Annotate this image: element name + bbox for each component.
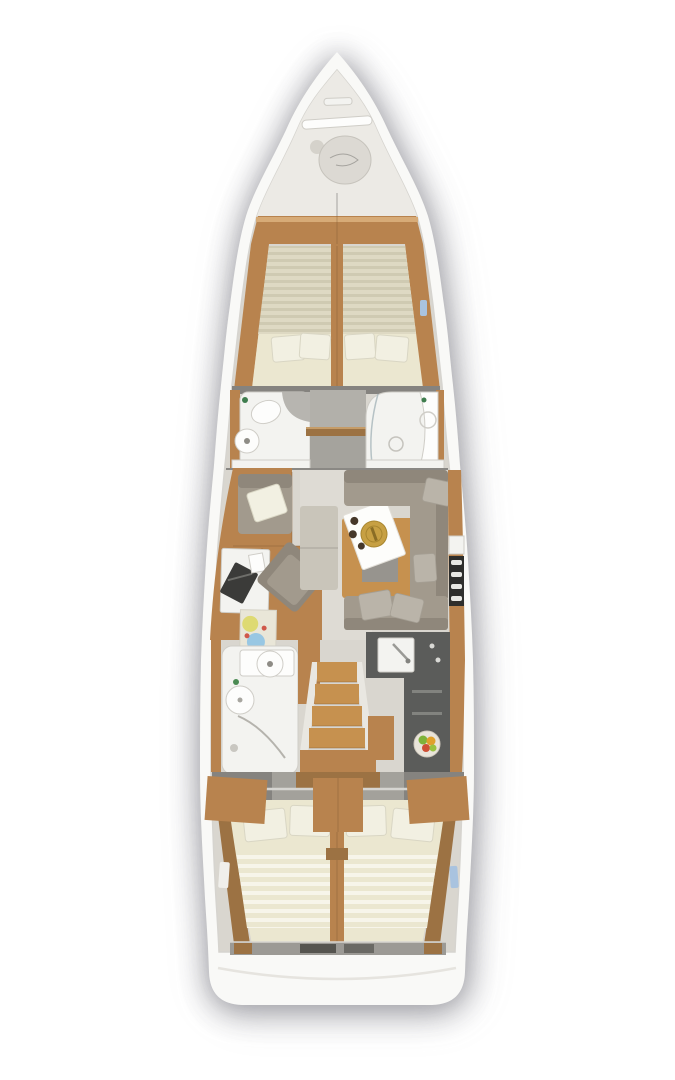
stern-hatch-dark bbox=[300, 944, 336, 953]
starboard-forward-shower bbox=[366, 392, 438, 466]
port-hull-pocket bbox=[218, 862, 230, 889]
armchair-back bbox=[238, 474, 292, 488]
aft-stbd-stripes bbox=[344, 852, 438, 928]
floor-plan-canvas bbox=[0, 0, 675, 1080]
counter-knob bbox=[430, 644, 435, 649]
port-lower-wood-sliver bbox=[211, 640, 221, 772]
sofa-pillow bbox=[413, 553, 437, 582]
aft-port-wardrobe bbox=[205, 776, 268, 824]
sofa-bottom-back bbox=[344, 618, 448, 630]
stair-tread-3 bbox=[312, 706, 362, 726]
stair-side-box bbox=[368, 716, 394, 760]
yacht-hull-group bbox=[200, 52, 474, 1005]
anchor-rope-coil bbox=[319, 136, 371, 184]
bowl bbox=[414, 731, 440, 757]
stern-step-strip bbox=[230, 942, 446, 955]
basin-drain bbox=[267, 661, 273, 667]
fruit-orange bbox=[427, 737, 436, 746]
aft-cabins bbox=[205, 776, 470, 944]
fruit-green-2 bbox=[430, 745, 437, 752]
basin-drain bbox=[244, 438, 250, 444]
faucet-dot-green bbox=[242, 397, 248, 403]
aft-port-stripes bbox=[236, 852, 330, 928]
stair-tread-1 bbox=[317, 662, 357, 682]
drawer-handle bbox=[412, 712, 442, 715]
pillow bbox=[375, 335, 409, 363]
forward-cabin bbox=[234, 216, 440, 390]
bottle bbox=[451, 584, 462, 589]
corridor-upper bbox=[310, 390, 366, 428]
stern-hatch-dark-2 bbox=[344, 944, 374, 953]
fruit-bowl bbox=[414, 731, 440, 757]
faucet-base bbox=[406, 659, 411, 664]
salon-fwd-wall-port bbox=[232, 460, 310, 469]
vberth-starboard-stripes bbox=[343, 246, 416, 334]
port-head-wood-sliver bbox=[230, 390, 240, 468]
bottle bbox=[451, 560, 462, 565]
toilet-drain bbox=[238, 698, 243, 703]
stair-tread-4 bbox=[309, 728, 365, 748]
stair-landing bbox=[300, 750, 376, 774]
salon-armchair bbox=[238, 474, 292, 534]
galley-sink bbox=[378, 638, 414, 672]
vberth-port-stripes bbox=[258, 246, 331, 334]
stair-tread-2 bbox=[315, 684, 359, 704]
oven-handle bbox=[412, 690, 442, 693]
fruit-red bbox=[422, 744, 430, 752]
faucet-dot-green bbox=[233, 679, 239, 685]
desk-paper bbox=[249, 553, 266, 573]
door-beam-highlight bbox=[306, 427, 370, 429]
shower-head bbox=[230, 744, 238, 752]
salon-fwd-wall-stbd bbox=[366, 460, 444, 469]
wardrobe-top bbox=[205, 776, 268, 824]
stern-wood-right bbox=[424, 943, 442, 954]
sideboard-wood-lower bbox=[448, 660, 465, 772]
sofa-right-back bbox=[436, 500, 448, 600]
bottle bbox=[451, 596, 462, 601]
faucet-dot-green bbox=[422, 398, 427, 403]
forward-corridor bbox=[306, 390, 370, 468]
counter-knob bbox=[436, 658, 441, 663]
forward-heads bbox=[226, 386, 448, 469]
port-forward-head bbox=[235, 392, 310, 466]
deck-hatch-blue bbox=[420, 300, 427, 316]
stbd-hull-hatch-blue bbox=[449, 866, 459, 889]
corridor-lower bbox=[310, 436, 366, 468]
aft-stbd-wardrobe bbox=[407, 776, 470, 824]
pillow bbox=[299, 333, 331, 360]
bottle bbox=[451, 572, 462, 577]
aft-divider-step bbox=[326, 848, 348, 860]
fruit-green bbox=[419, 736, 428, 745]
bow-fitting bbox=[324, 98, 352, 106]
pillow bbox=[344, 333, 376, 360]
sofa-pillow bbox=[358, 589, 394, 620]
stern-wood-left bbox=[234, 943, 252, 954]
wardrobe-top bbox=[407, 776, 470, 824]
sideboard-white-cabinet bbox=[449, 536, 464, 554]
yacht-floor-plan-image bbox=[0, 0, 675, 1080]
